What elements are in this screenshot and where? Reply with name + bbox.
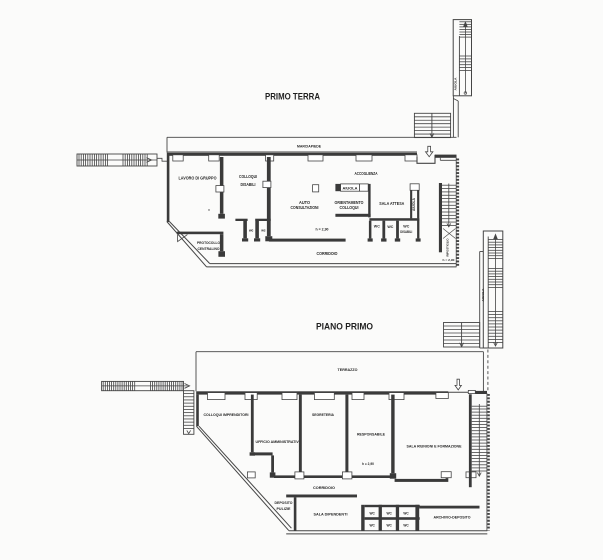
svg-text:ARCHIVIO-DEPOSITO: ARCHIVIO-DEPOSITO — [434, 516, 471, 520]
svg-text:DISABILI: DISABILI — [241, 182, 256, 187]
svg-text:DEPOSITO: DEPOSITO — [275, 501, 293, 505]
svg-text:ACCOGLIENZA: ACCOGLIENZA — [355, 171, 378, 176]
svg-text:wc: wc — [248, 228, 254, 232]
svg-text:PRIMO TERRA: PRIMO TERRA — [265, 92, 320, 102]
svg-text:SALA ATTESA: SALA ATTESA — [379, 201, 404, 206]
svg-text:AIUOLA: AIUOLA — [481, 288, 485, 302]
svg-text:wc: wc — [260, 228, 266, 232]
svg-text:WC: WC — [387, 225, 394, 229]
svg-text:PROTOCOLLO: PROTOCOLLO — [197, 240, 220, 245]
svg-text:AIUOLA: AIUOLA — [454, 76, 458, 90]
svg-text:WC: WC — [386, 512, 392, 516]
svg-text:WC: WC — [403, 523, 409, 527]
svg-text:LAVORO DI GRUPPO: LAVORO DI GRUPPO — [179, 175, 218, 180]
svg-text:h = 2,90: h = 2,90 — [443, 259, 456, 262]
svg-text:COLLOQUI: COLLOQUI — [239, 174, 257, 179]
svg-text:PULIZIE: PULIZIE — [277, 507, 292, 511]
svg-text:CORRIDOIO: CORRIDOIO — [313, 485, 335, 490]
svg-text:SALA RIUNIONI E FORMAZIONE: SALA RIUNIONI E FORMAZIONE — [407, 444, 463, 448]
svg-text:h = 2,90: h = 2,90 — [316, 227, 329, 232]
svg-text:RESPONSABILE: RESPONSABILE — [357, 432, 386, 436]
svg-text:COLLOQUI IMPRENDITORI: COLLOQUI IMPRENDITORI — [204, 413, 249, 417]
svg-text:COLLOQUI: COLLOQUI — [340, 205, 359, 210]
svg-text:WC: WC — [370, 523, 376, 527]
svg-text:CONSULTAZIONI: CONSULTAZIONI — [291, 205, 319, 210]
svg-text:WC: WC — [386, 523, 392, 527]
svg-text:AIUOLA: AIUOLA — [412, 197, 416, 211]
svg-text:CENTRALINO: CENTRALINO — [198, 246, 220, 251]
svg-text:WC: WC — [374, 225, 381, 229]
svg-text:WC: WC — [403, 225, 410, 229]
svg-text:TERRAZZO: TERRAZZO — [338, 368, 358, 372]
svg-text:AIUOLA: AIUOLA — [343, 186, 358, 190]
svg-text:WC: WC — [370, 512, 376, 516]
svg-text:UFFICIO AMMINISTRATIVO: UFFICIO AMMINISTRATIVO — [256, 440, 302, 444]
svg-text:RIPOSTIGLIO: RIPOSTIGLIO — [445, 239, 449, 257]
svg-text:h = 2,90: h = 2,90 — [362, 462, 374, 466]
svg-text:SEGRETERIA: SEGRETERIA — [312, 413, 334, 417]
svg-text:MARCIAPIEDE: MARCIAPIEDE — [297, 144, 321, 149]
svg-text:DISABILI: DISABILI — [400, 230, 412, 234]
svg-text:PIANO PRIMO: PIANO PRIMO — [316, 322, 373, 332]
svg-text:SALA DIPENDENTI: SALA DIPENDENTI — [314, 512, 348, 516]
svg-text:WC: WC — [403, 512, 409, 516]
svg-text:CORRIDOIO: CORRIDOIO — [317, 251, 339, 256]
